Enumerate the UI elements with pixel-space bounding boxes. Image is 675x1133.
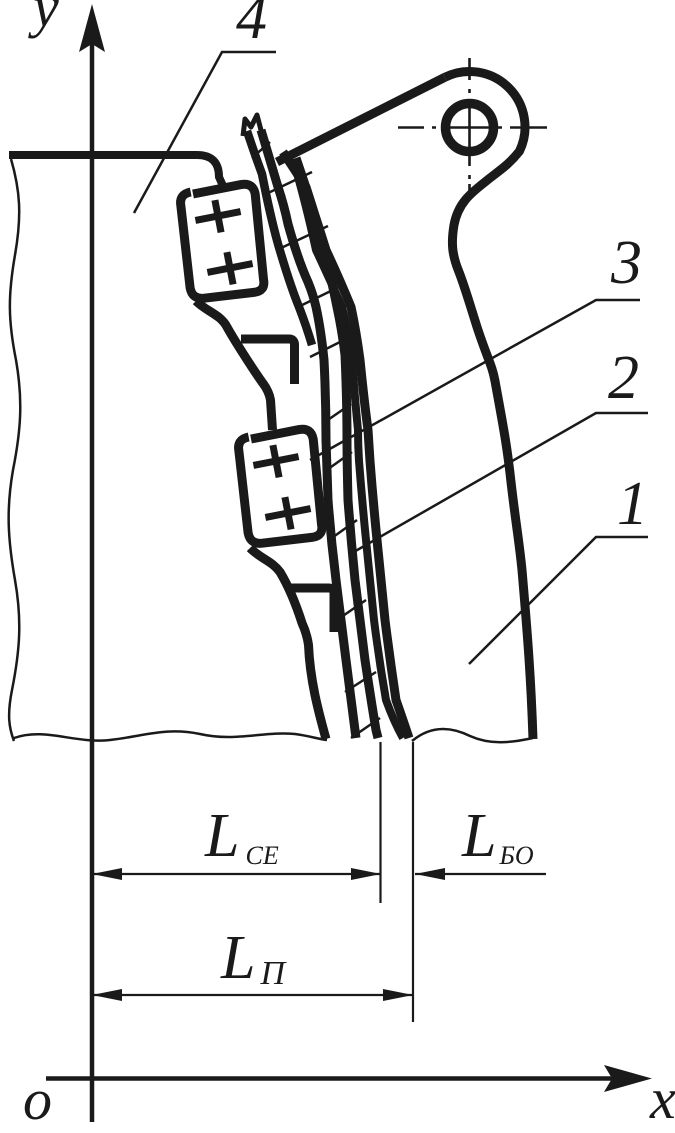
svg-text:3: 3 — [610, 229, 642, 297]
svg-text:4: 4 — [236, 0, 267, 52]
svg-text:o: o — [23, 1067, 52, 1132]
svg-text:LП: LП — [220, 924, 287, 992]
svg-text:LБО: LБО — [461, 802, 534, 870]
svg-text:x: x — [649, 1066, 675, 1131]
svg-text:2: 2 — [608, 344, 639, 412]
svg-text:LСЕ: LСЕ — [204, 802, 279, 870]
svg-text:y: y — [28, 0, 59, 39]
svg-text:1: 1 — [617, 470, 648, 538]
